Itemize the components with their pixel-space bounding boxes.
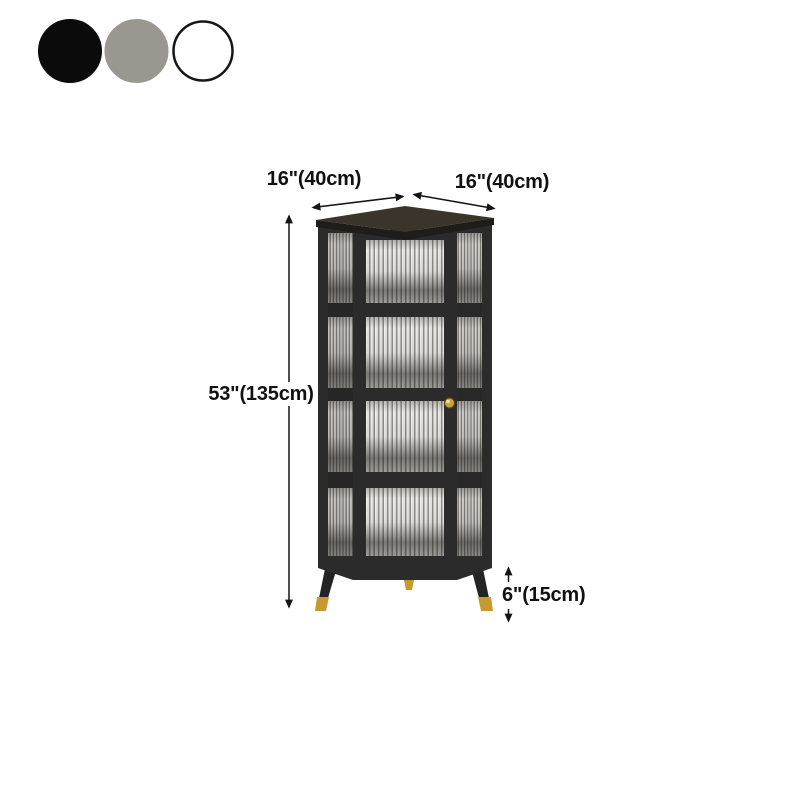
door-knob xyxy=(445,398,455,408)
top-depth-arrow xyxy=(414,195,494,209)
top-depth-label: 16"(40cm) xyxy=(455,171,549,193)
glass-panel-left xyxy=(328,233,353,556)
glass-panel-right xyxy=(457,233,482,556)
product-dimension-image: 16"(40cm) 16"(40cm) 53"(135cm) 6"(15cm) xyxy=(0,0,800,800)
leg-center-gold-cap xyxy=(404,580,414,590)
leg-right-gold-cap xyxy=(478,597,493,611)
height-label: 53"(135cm) xyxy=(204,382,317,406)
color-swatch-white[interactable] xyxy=(174,22,233,81)
cabinet-illustration xyxy=(315,206,494,611)
leg-left-gold-cap xyxy=(315,597,329,611)
top-width-arrow xyxy=(313,197,403,208)
color-swatches xyxy=(39,20,233,83)
scene-svg xyxy=(0,0,800,800)
color-swatch-black[interactable] xyxy=(39,20,102,83)
leg-height-label: 6"(15cm) xyxy=(502,584,585,606)
color-swatch-gray[interactable] xyxy=(105,20,168,83)
top-width-label: 16"(40cm) xyxy=(267,168,361,190)
